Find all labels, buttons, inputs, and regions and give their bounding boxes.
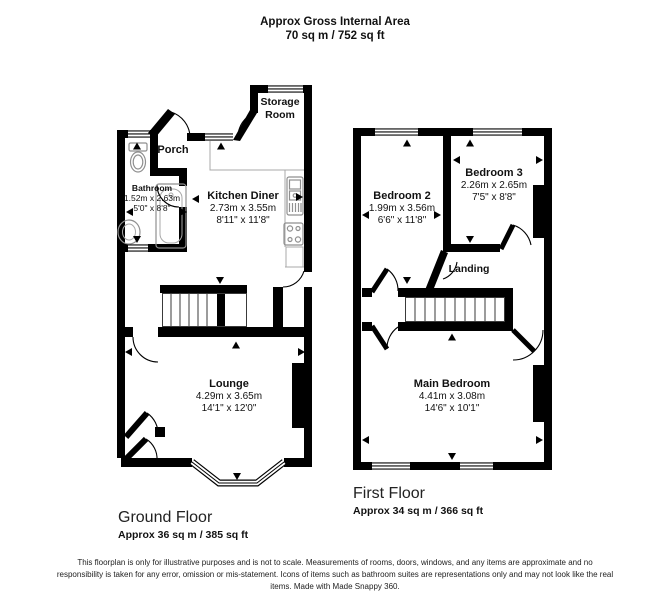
door-leaf [372, 269, 387, 292]
window [473, 128, 522, 135]
chimney-breast [292, 363, 312, 428]
room-label-main-bedroom: Main Bedroom 4.41m x 3.08m 14'6" x 10'1" [414, 378, 490, 415]
window [128, 130, 150, 137]
window [460, 462, 493, 469]
floorplan-drawing [0, 0, 670, 602]
door-arc [283, 271, 304, 287]
kitchen-worktop [286, 247, 303, 267]
floorplan-page: Approx Gross Internal Area 70 sq m / 752… [0, 0, 670, 602]
page-title: Approx Gross Internal Area [0, 15, 670, 29]
stove-icon [284, 223, 303, 245]
window [268, 85, 303, 92]
room-label-bedroom-2: Bedroom 2 1.99m x 3.56m 6'6" x 11'8" [369, 190, 435, 227]
wall [117, 130, 125, 458]
ground-floor-plan [117, 85, 312, 483]
room-label-porch: Porch [157, 144, 188, 157]
room-label-bathroom: Bathroom 1.52m x 2.63m 5'0" x 8'8" [124, 183, 180, 213]
porch-door-wall [148, 109, 175, 138]
window [375, 128, 418, 135]
door-arc [387, 269, 398, 291]
room-label-bedroom-3: Bedroom 3 2.26m x 2.65m 7'5" x 8'8" [461, 167, 527, 204]
ground-floor-caption: Ground Floor Approx 36 sq m / 385 sq ft [118, 508, 248, 542]
room-label-lounge: Lounge 4.29m x 3.65m 14'1" x 12'0" [196, 378, 262, 415]
chimney-breast [533, 185, 552, 238]
page-subtitle: 70 sq m / 752 sq ft [0, 29, 670, 43]
window [205, 133, 233, 140]
staircase [160, 285, 283, 327]
room-label-storage-room: Storage Room [252, 96, 308, 122]
bay-window [192, 462, 284, 483]
window [128, 244, 148, 251]
door-leaf [513, 330, 534, 351]
room-label-kitchen-diner: Kitchen Diner 2.73m x 3.55m 8'11" x 11'8… [207, 190, 279, 227]
disclaimer-text: This floorplan is only for illustrative … [55, 557, 615, 593]
corner-doors [126, 413, 165, 460]
staircase [406, 295, 514, 324]
door-leaf [501, 225, 513, 249]
first-floor-caption: First Floor Approx 34 sq m / 366 sq ft [353, 484, 483, 518]
door-arc [133, 337, 158, 362]
door-arc [513, 225, 531, 245]
plan-header: Approx Gross Internal Area 70 sq m / 752… [0, 15, 670, 43]
chimney-breast [533, 365, 552, 422]
window [372, 462, 410, 469]
landing-diagonal-wall [425, 250, 448, 293]
door-arc [387, 327, 398, 349]
door-leaf [372, 326, 387, 349]
room-label-landing: Landing [449, 263, 490, 276]
